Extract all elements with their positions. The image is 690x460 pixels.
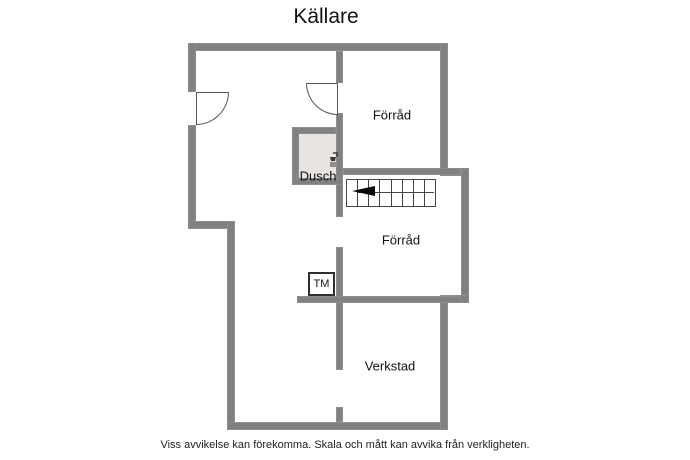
- room-label-forrad-top: Förråd: [373, 108, 411, 123]
- wall-left-upper-a: [188, 43, 196, 92]
- stair-tread: [413, 180, 424, 206]
- page-title: Källare: [293, 5, 358, 29]
- stair-tread: [424, 180, 435, 206]
- wall-right-lower: [440, 295, 448, 430]
- washing-machine-label: TM: [314, 278, 330, 290]
- wall-bottom: [227, 422, 448, 430]
- wall-central-d: [336, 407, 343, 422]
- wall-dusch-left: [292, 127, 299, 185]
- door-arc-interior: [306, 83, 338, 115]
- room-label-verkstad: Verkstad: [365, 359, 416, 374]
- shower-icon: [328, 152, 339, 169]
- stair-tread: [379, 180, 390, 206]
- wall-central-a: [336, 51, 343, 83]
- wall-left-lower: [227, 221, 235, 430]
- floorplan-canvas: Källare TM Förråd Dus: [0, 0, 690, 460]
- wall-mid-bottom: [297, 296, 461, 303]
- wall-right-mid: [461, 168, 469, 303]
- stair-tread: [391, 180, 402, 206]
- stairs-direction-arrow: [352, 186, 375, 196]
- door-arc-exterior: [196, 92, 229, 125]
- wall-right-upper: [440, 43, 448, 176]
- washing-machine-box: TM: [308, 272, 335, 296]
- wall-stairs-top: [343, 168, 461, 175]
- wall-left-upper-b: [188, 125, 196, 229]
- wall-top: [188, 43, 448, 51]
- disclaimer-text: Viss avvikelse kan förekomma. Skala och …: [160, 439, 529, 451]
- room-label-dusch: Dusch: [300, 169, 337, 184]
- wall-central-c: [336, 247, 343, 370]
- room-label-forrad-middle: Förråd: [382, 233, 420, 248]
- stair-tread: [402, 180, 413, 206]
